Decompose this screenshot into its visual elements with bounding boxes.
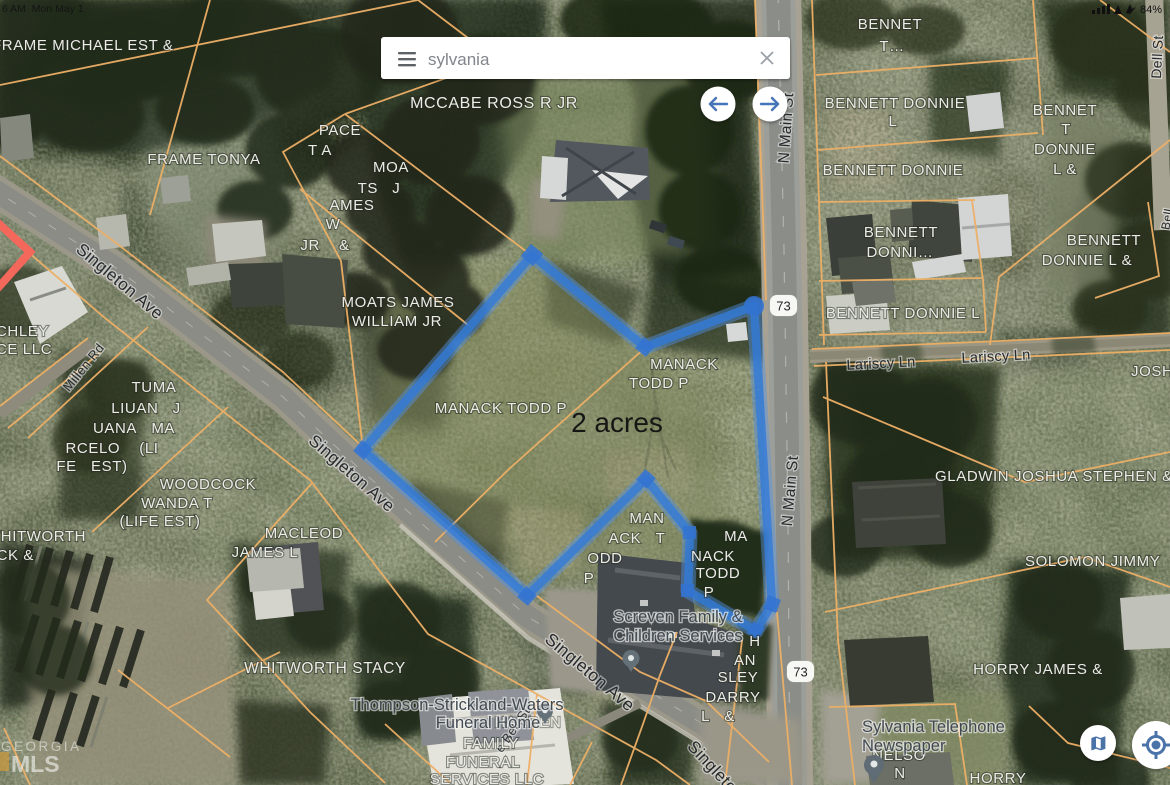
svg-text:6 AM Mon May 1: 6 AM Mon May 1: [2, 3, 84, 15]
svg-text:84%: 84%: [1140, 4, 1162, 16]
svg-text:MLS: MLS: [11, 751, 60, 777]
svg-text:sylvania: sylvania: [428, 50, 490, 69]
